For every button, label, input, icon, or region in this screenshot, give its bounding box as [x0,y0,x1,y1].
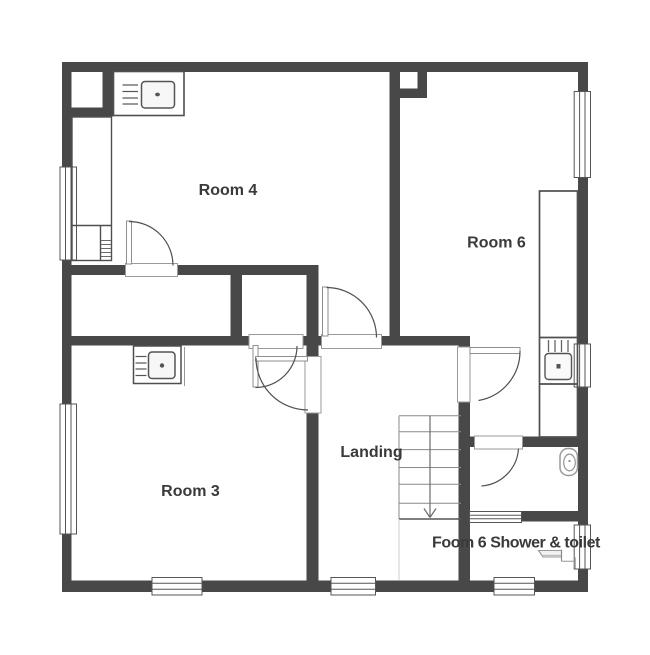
svg-text:Room 4: Room 4 [199,182,258,199]
svg-text:Room 6: Room 6 [467,235,526,252]
svg-text:Room 3: Room 3 [161,483,220,500]
svg-text:Foom 6 Shower & toilet: Foom 6 Shower & toilet [432,535,601,552]
svg-text:Landing: Landing [340,444,402,461]
